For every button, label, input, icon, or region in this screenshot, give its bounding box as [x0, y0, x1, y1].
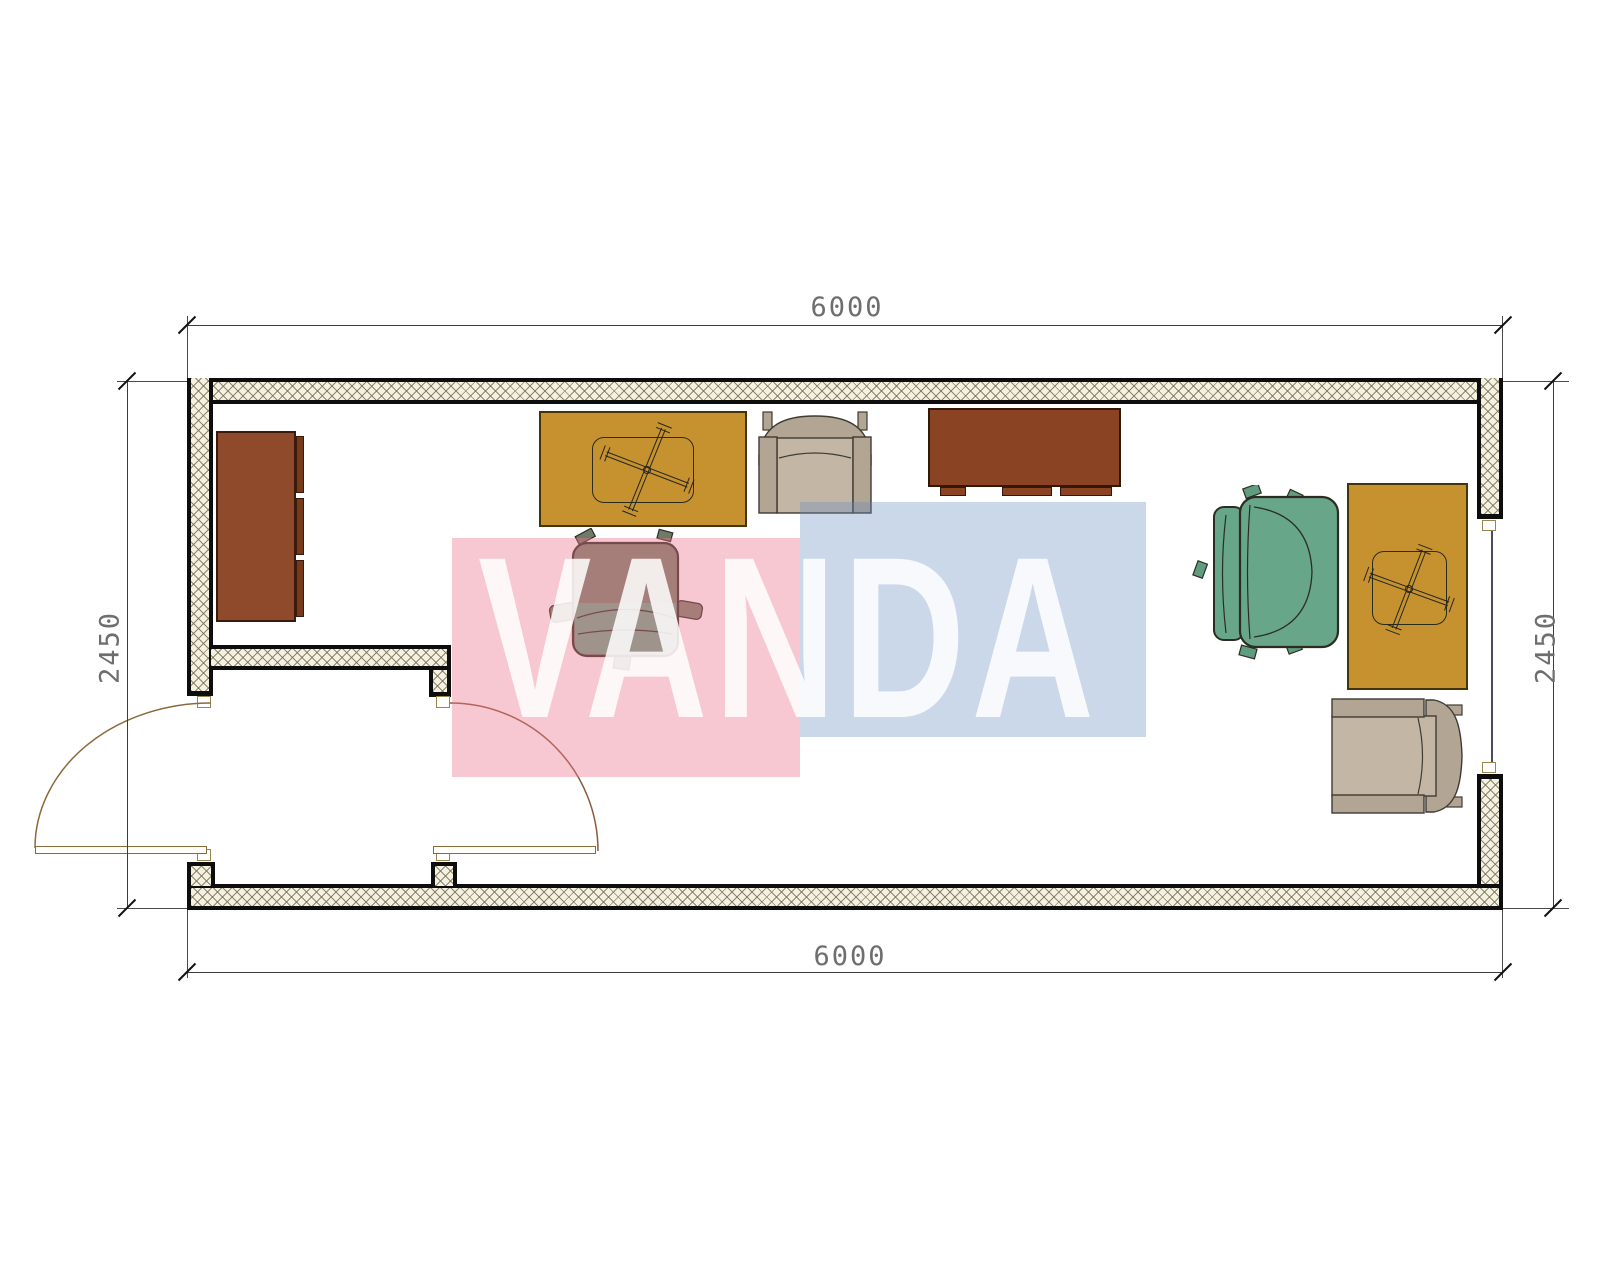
dimension-line-top — [187, 325, 1503, 326]
sideboard-foot — [1060, 487, 1112, 496]
dimension-label-top: 6000 — [787, 292, 907, 323]
cabinet-door — [296, 498, 304, 555]
floor-plan-canvas: VANDA 6000 6000 2450 2450 — [0, 0, 1600, 1280]
armchair-bottom-right — [1330, 698, 1464, 814]
cabinet-door — [296, 560, 304, 617]
desk-x-hub — [643, 466, 651, 474]
cabinet — [216, 431, 296, 622]
dimension-label-right: 2450 — [1531, 588, 1562, 708]
office-chair-right — [1192, 485, 1344, 663]
window-glass-line — [1491, 531, 1493, 762]
window-jamb — [1482, 762, 1496, 773]
sideboard-foot — [1002, 487, 1052, 496]
extension-line — [1503, 381, 1569, 382]
window-jamb — [1482, 520, 1496, 531]
dimension-label-left: 2450 — [95, 588, 126, 708]
watermark-text: VANDA — [478, 530, 1100, 745]
desk-right — [1347, 483, 1468, 690]
wall-right-upper — [1477, 378, 1503, 519]
wall-top — [187, 378, 1503, 404]
sideboard — [928, 408, 1121, 487]
sideboard-foot — [940, 487, 966, 496]
cabinet-door — [296, 436, 304, 493]
desk-x-hub — [1405, 585, 1413, 593]
dimension-label-bottom: 6000 — [790, 941, 910, 972]
wall-left — [187, 378, 213, 696]
dimension-line-left — [127, 381, 128, 908]
dimension-line-bottom — [187, 972, 1503, 973]
door-leaf-left — [35, 846, 207, 854]
armchair-top — [758, 411, 872, 515]
door-leaf-right — [433, 846, 596, 854]
vestibule-partition — [211, 645, 451, 670]
extension-line — [1502, 910, 1503, 978]
wall-bottom — [187, 884, 1503, 910]
extension-line — [1503, 908, 1569, 909]
